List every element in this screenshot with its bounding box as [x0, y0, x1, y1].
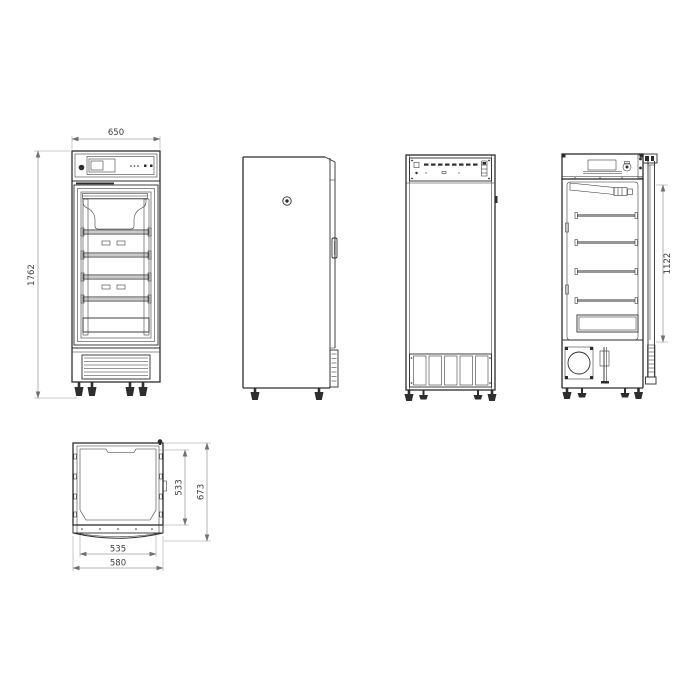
dim-label-533: 533	[175, 479, 185, 495]
plan-door	[73, 525, 163, 538]
side-cabinet-outline	[243, 157, 330, 388]
dim-overall-depth: 673	[164, 443, 211, 541]
panel-button	[144, 165, 147, 168]
access-port	[283, 197, 291, 205]
casters-and-feet	[563, 388, 644, 399]
shelf	[81, 273, 151, 281]
hinge-plate	[495, 196, 498, 203]
control-unit	[588, 160, 616, 170]
dim-label-580: 580	[110, 559, 126, 569]
door-lock-icon	[79, 165, 85, 171]
shelf	[575, 298, 638, 304]
inner-liner	[80, 449, 156, 520]
section-grille	[577, 315, 638, 332]
terminal-connector	[482, 161, 488, 176]
condenser-vents	[410, 354, 492, 387]
glass-door	[74, 185, 158, 345]
shelf	[575, 269, 638, 275]
hinge-pin	[158, 439, 163, 445]
drawing-canvas: 650 1762	[0, 0, 700, 700]
support-bracket	[600, 347, 609, 384]
side-vent-strip	[330, 350, 338, 387]
control-panel	[75, 154, 157, 184]
compressor-compartment	[565, 347, 609, 384]
plan-cabinet-outline	[73, 443, 163, 525]
section-shelves	[566, 213, 638, 304]
door-bottom-vent	[648, 345, 656, 377]
dim-label-1762: 1762	[27, 264, 37, 286]
dim-label-1122: 1122	[663, 253, 673, 275]
lower-compartment	[72, 348, 160, 379]
shelf	[81, 251, 151, 259]
rear-top-panel	[410, 158, 492, 181]
shelf	[575, 213, 638, 219]
section-cabinet-outline	[562, 179, 643, 388]
dim-label-535: 535	[110, 545, 126, 555]
casters	[75, 382, 148, 396]
dim-interior-height: 1122	[656, 185, 673, 342]
casters-and-feet	[405, 390, 497, 401]
rear-view	[395, 125, 510, 405]
shelf	[575, 240, 638, 246]
shelves	[81, 228, 151, 303]
compressor	[568, 352, 590, 374]
dim-front-width: 650	[72, 128, 160, 149]
front-cabinet-outline	[72, 151, 160, 382]
dim-label-650: 650	[108, 128, 124, 138]
rear-cabinet-outline	[406, 155, 495, 390]
shelf	[81, 295, 151, 303]
section-door	[643, 154, 657, 384]
interior-grille	[83, 318, 149, 332]
casters	[251, 388, 324, 400]
plan-view: 535 580 533 673	[60, 430, 220, 580]
air-duct	[83, 194, 148, 230]
door-handle	[332, 238, 337, 258]
bottom-hinge	[646, 377, 657, 384]
section-view: 1122	[550, 125, 698, 405]
front-view: 650 1762	[25, 125, 170, 407]
panel-button	[150, 165, 153, 168]
dim-label-673: 673	[197, 484, 207, 500]
power-inlet	[414, 163, 419, 168]
dim-front-height: 1762	[27, 151, 77, 398]
vent-slots	[424, 164, 478, 166]
top-machine-compartment	[562, 154, 643, 179]
shelf-rails	[83, 199, 149, 335]
evaporator-assembly	[570, 183, 633, 196]
side-view	[235, 125, 350, 405]
